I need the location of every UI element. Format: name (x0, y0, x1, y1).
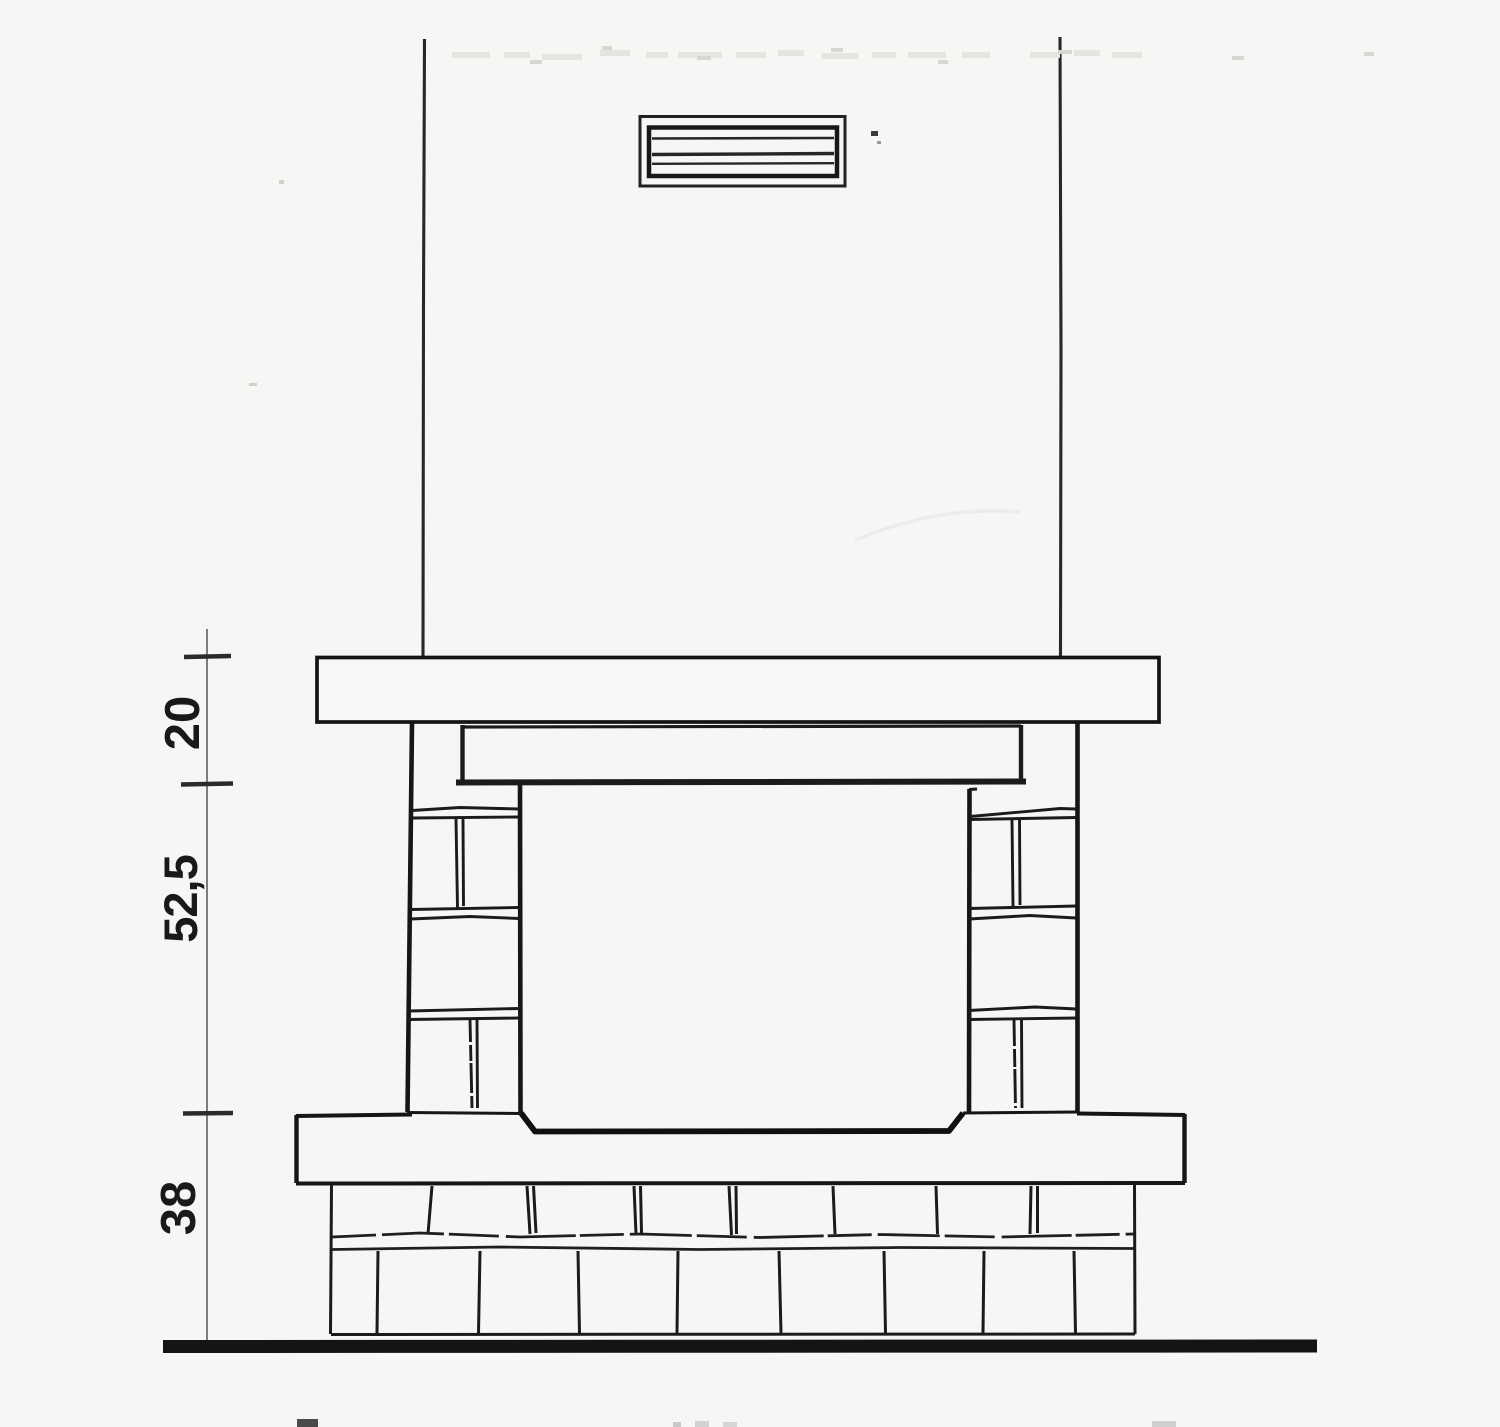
svg-text:20: 20 (156, 696, 210, 751)
svg-text:52,5: 52,5 (154, 855, 207, 942)
svg-text:38: 38 (152, 1181, 206, 1236)
